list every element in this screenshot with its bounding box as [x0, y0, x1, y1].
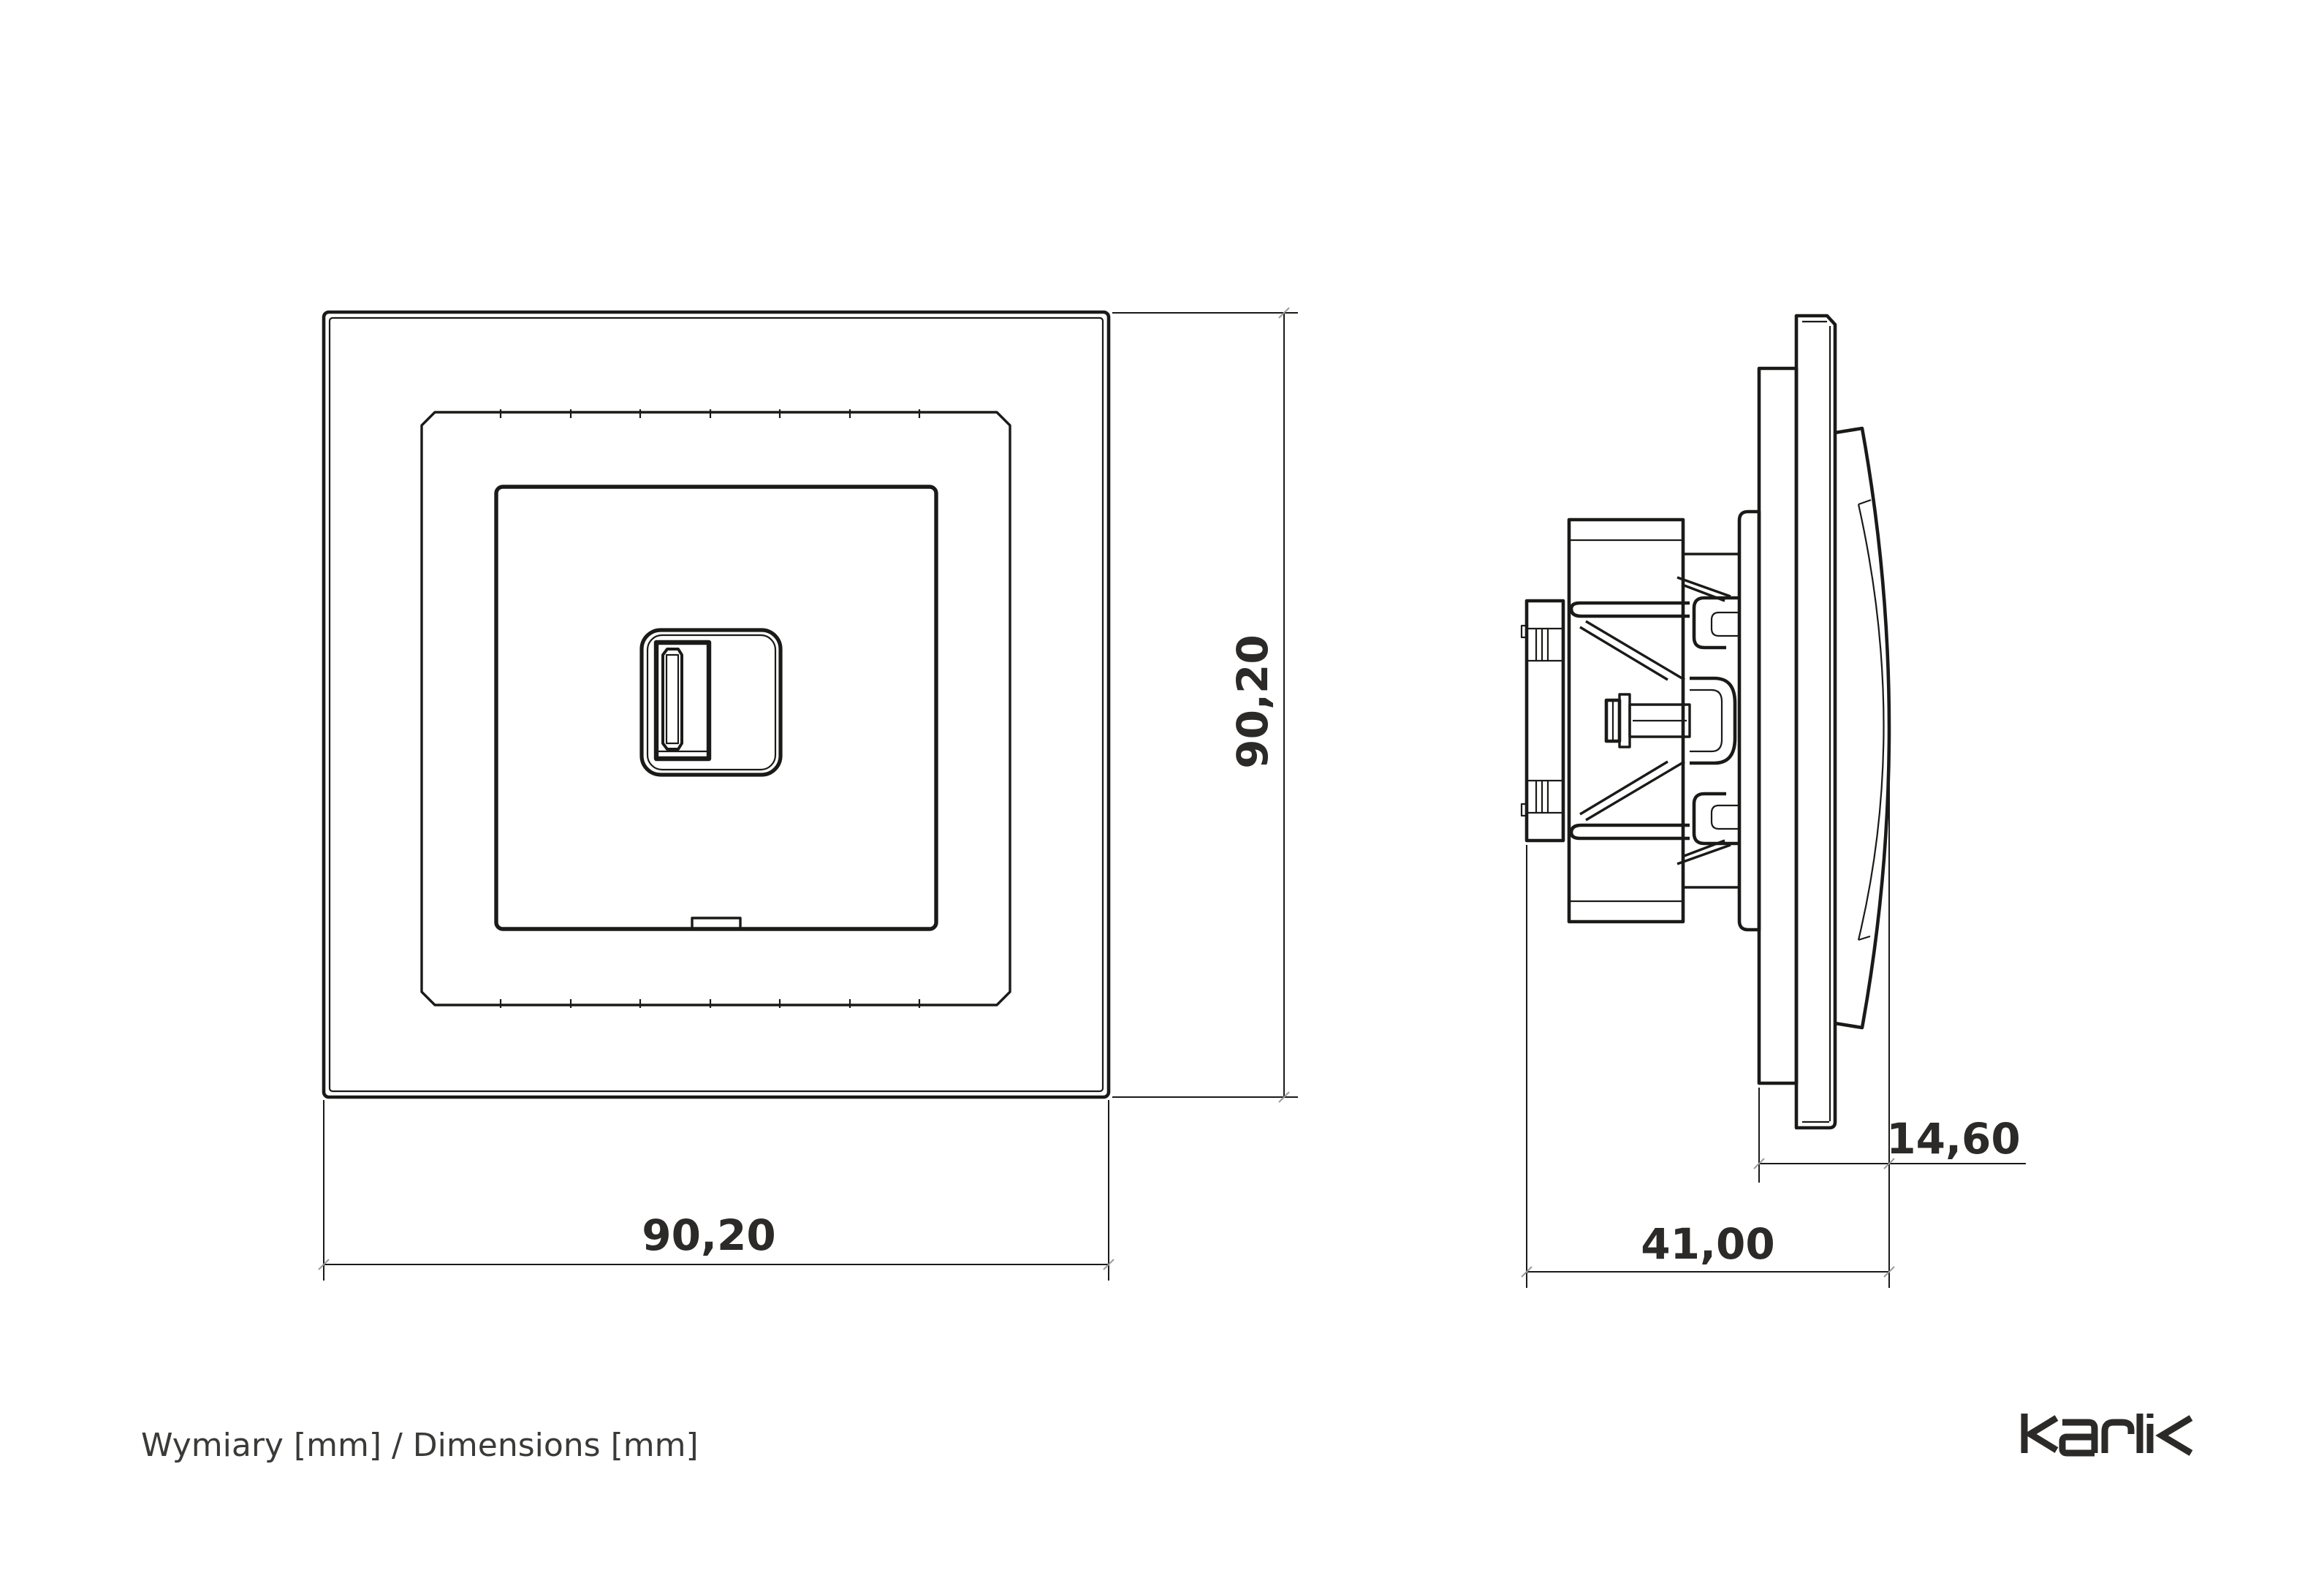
claw-screw [1606, 694, 1690, 747]
front-view [324, 312, 1109, 1097]
cover-plate-side-inner [1802, 322, 1830, 1122]
claw-shelf-bottom [1571, 825, 1690, 838]
front-frame-opening [422, 412, 1010, 1005]
dimension-front-height: 90,20 [1112, 308, 1298, 1102]
claw-tooth-bottom [1522, 804, 1527, 816]
dimension-side-depth: 41,00 [1522, 740, 1894, 1288]
logo-k2-chevron [2162, 1418, 2191, 1453]
front-outer-plate-inner-edge [330, 318, 1103, 1091]
claw-arm-bottom [1580, 762, 1685, 820]
screw-clamp-boss [1690, 678, 1735, 763]
brand-logo: karlik [2024, 1414, 2191, 1453]
side-depth-label: 41,00 [1641, 1219, 1774, 1269]
usb-port [642, 630, 781, 775]
logo-k1-chevron [2030, 1418, 2057, 1450]
logo-r [2105, 1422, 2131, 1453]
dimension-front-width: 90,20 [319, 1100, 1114, 1281]
claw-shelf-top [1571, 603, 1690, 616]
frame-hook-top [1677, 577, 1738, 648]
technical-drawing-page: 90,20 90,20 41,00 14,60 Wymiary [mm] / D… [0, 0, 2324, 1589]
side-view [1522, 316, 1889, 1128]
curved-front-cover [1835, 428, 1889, 1028]
body-frame-connectors [1683, 554, 1739, 887]
module-face [496, 487, 936, 929]
side-protrusion-label: 14,60 [1886, 1114, 2020, 1164]
frame-hook-bottom [1677, 794, 1738, 864]
dimension-drawing: 90,20 90,20 41,00 14,60 Wymiary [mm] / D… [0, 0, 2324, 1589]
usb-tongue-inner [667, 655, 678, 743]
mounting-claw [1522, 601, 1563, 841]
support-frame-plate [1759, 368, 1796, 1083]
front-height-label: 90,20 [1228, 634, 1277, 768]
front-width-label: 90,20 [642, 1210, 775, 1260]
front-outer-plate [324, 312, 1109, 1097]
logo-a [2062, 1422, 2095, 1453]
units-caption: Wymiary [mm] / Dimensions [mm] [141, 1427, 699, 1464]
claw-tooth-top [1522, 626, 1527, 637]
claw-arm-top [1580, 621, 1685, 680]
module-column [1739, 512, 1759, 930]
